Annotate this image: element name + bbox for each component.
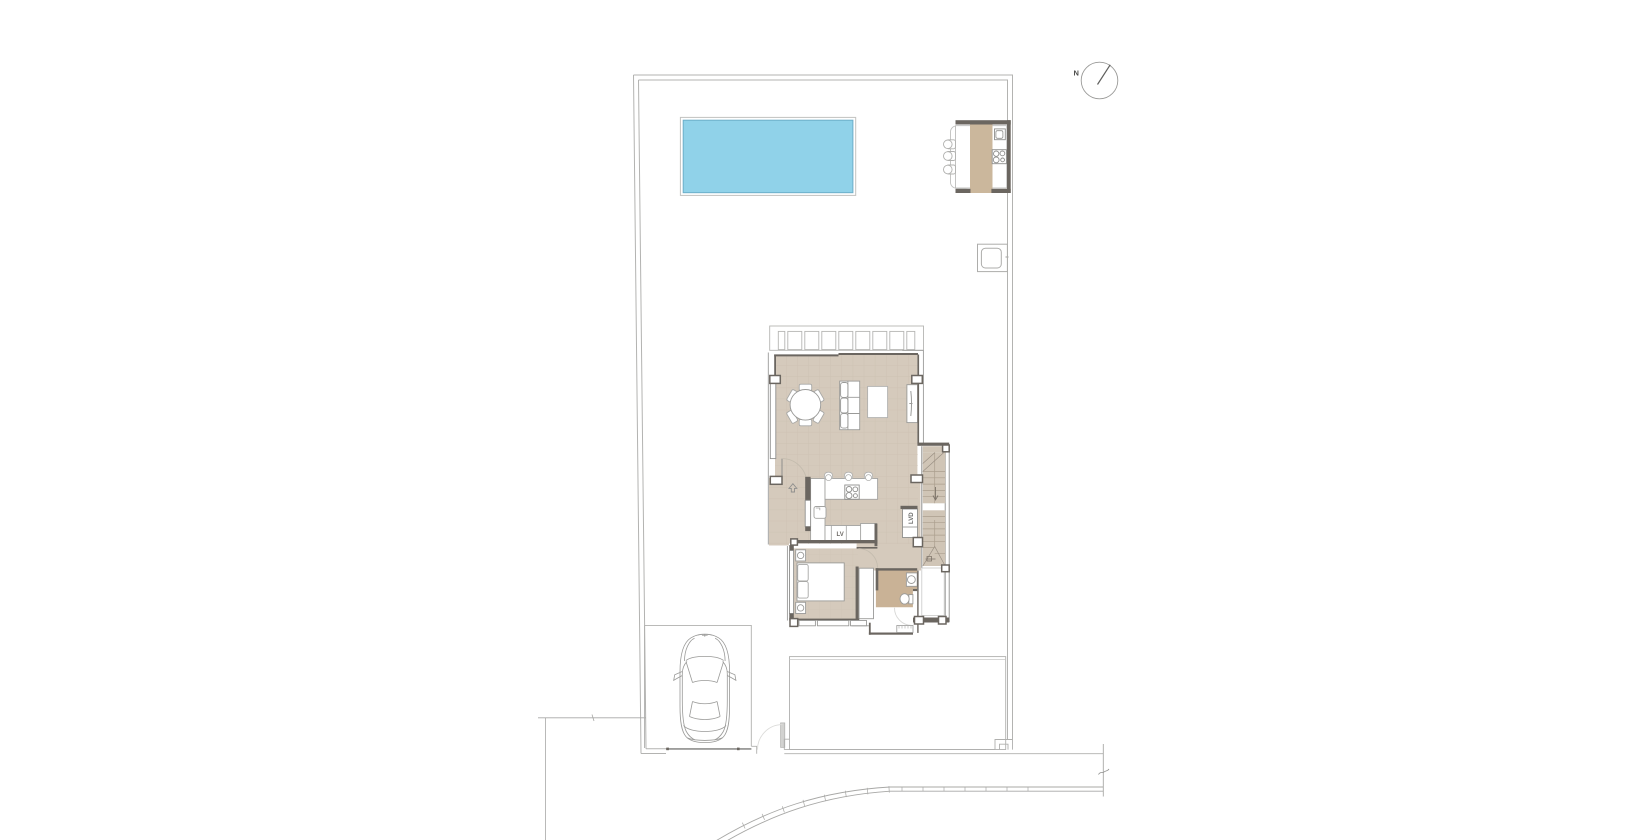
svg-text:N: N <box>1074 69 1079 78</box>
svg-text:LV: LV <box>837 532 844 538</box>
svg-text:LVD: LVD <box>909 512 915 524</box>
